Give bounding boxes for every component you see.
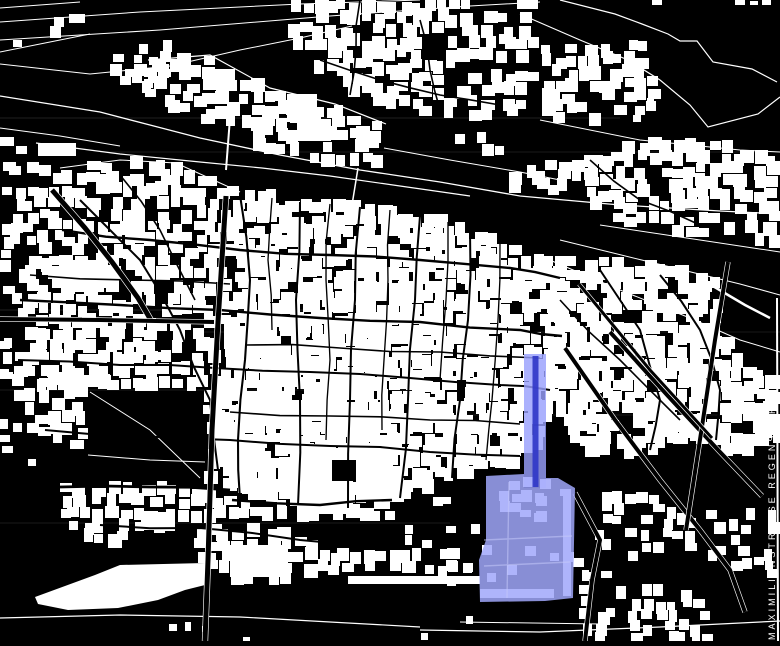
svg-text:MAXIMILIANSTRASSE REGENSBURG: MAXIMILIANSTRASSE REGENSBURG [767, 397, 777, 640]
